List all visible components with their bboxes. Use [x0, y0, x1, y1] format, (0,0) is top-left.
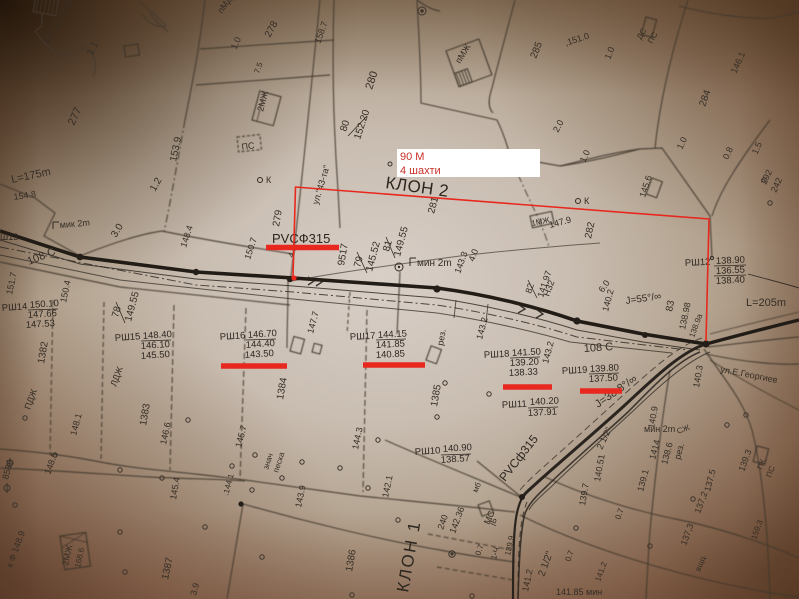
svg-text:РШ14: РШ14: [1, 301, 27, 314]
svg-text:мин 2m: мин 2m: [417, 258, 452, 269]
svg-text:4 шахти: 4 шахти: [400, 165, 441, 177]
svg-text:147.53: 147.53: [25, 318, 55, 331]
svg-text:137.50: 137.50: [589, 372, 619, 385]
svg-text:РШ19: РШ19: [562, 365, 588, 377]
svg-text:РШ10: РШ10: [414, 445, 440, 458]
svg-text:138.40: 138.40: [716, 274, 746, 287]
svg-text:К: К: [266, 175, 272, 185]
svg-text:РШ11: РШ11: [502, 399, 527, 411]
svg-text:ПС: ПС: [241, 140, 256, 152]
svg-text:141.85 мин: 141.85 мин: [556, 587, 602, 597]
svg-text:РШ12: РШ12: [685, 257, 711, 269]
svg-text:143.50: 143.50: [244, 348, 274, 361]
svg-text:РШ17: РШ17: [350, 331, 376, 343]
svg-text:137.91: 137.91: [528, 406, 558, 419]
svg-text:140.85: 140.85: [376, 348, 406, 361]
svg-text:Ш13: Ш13: [0, 232, 18, 242]
svg-text:РШ18: РШ18: [484, 349, 510, 361]
svg-text:145.50: 145.50: [140, 349, 170, 362]
svg-text:РVСФ315: РVСФ315: [272, 231, 330, 246]
svg-text:К: К: [584, 196, 590, 206]
svg-text:РШ16: РШ16: [219, 330, 245, 343]
svg-text:РШ15: РШ15: [114, 331, 140, 344]
svg-text:108 С: 108 С: [583, 341, 613, 355]
svg-text:L=205m: L=205m: [746, 297, 786, 309]
svg-text:90 М: 90 М: [400, 151, 424, 163]
svg-text:138.33: 138.33: [509, 366, 539, 379]
